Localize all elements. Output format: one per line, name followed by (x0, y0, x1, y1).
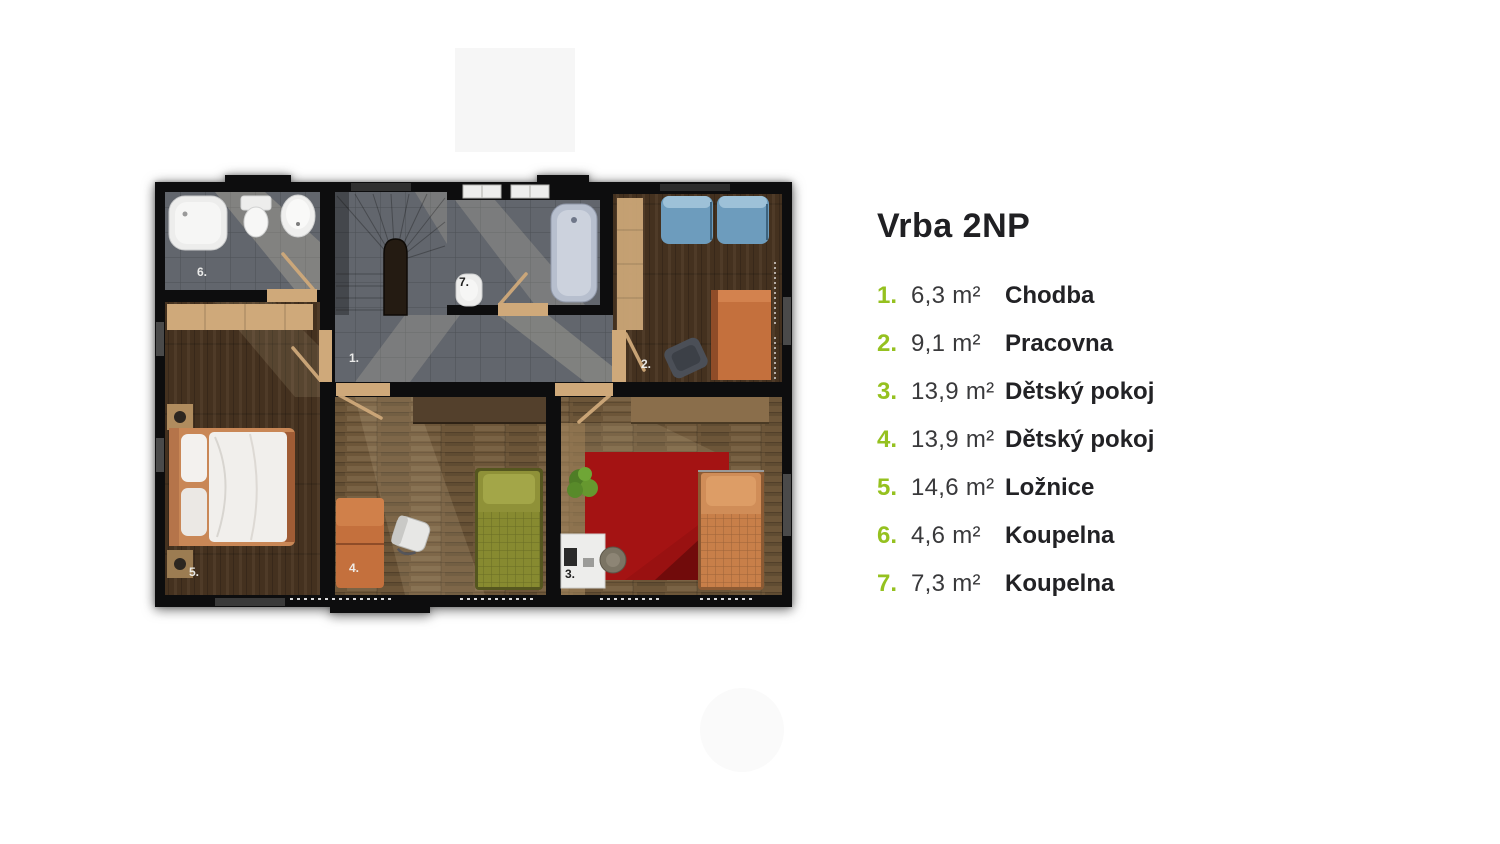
legend-area: 6,3 m² (911, 282, 1005, 310)
legend-number: 2. (877, 330, 911, 358)
legend-room-name: Koupelna (1005, 570, 1114, 598)
legend-row: 4. 13,9 m² Dětský pokoj (877, 426, 1297, 452)
page: 1. 2. 3. 4. 5. 6. 7. Vrba 2NP 1. 6,3 m² … (0, 0, 1500, 844)
legend: Vrba 2NP 1. 6,3 m² Chodba 2. 9,1 m² Prac… (877, 204, 1297, 618)
legend-area: 4,6 m² (911, 522, 1005, 550)
legend-room-name: Chodba (1005, 282, 1094, 310)
faint-render-artifact (700, 688, 784, 772)
room-label-bath-6: 6. (197, 265, 207, 279)
legend-number: 3. (877, 378, 911, 406)
legend-number: 7. (877, 570, 911, 598)
room-label-kids-3: 3. (565, 567, 575, 581)
legend-row: 2. 9,1 m² Pracovna (877, 330, 1297, 356)
orange-sofa (336, 498, 384, 588)
legend-row: 6. 4,6 m² Koupelna (877, 522, 1297, 548)
legend-area: 13,9 m² (911, 378, 1005, 406)
legend-area: 7,3 m² (911, 570, 1005, 598)
room-label-bedroom: 5. (189, 565, 199, 579)
legend-number: 4. (877, 426, 911, 454)
legend-number: 5. (877, 474, 911, 502)
legend-room-name: Pracovna (1005, 330, 1113, 358)
room-label-study: 2. (641, 357, 651, 371)
legend-row: 7. 7,3 m² Koupelna (877, 570, 1297, 596)
room-label-kids-4: 4. (349, 561, 359, 575)
room-label-bath-7: 7. (459, 275, 469, 289)
legend-room-name: Dětský pokoj (1005, 378, 1154, 406)
orange-bed (698, 470, 764, 590)
legend-row: 3. 13,9 m² Dětský pokoj (877, 378, 1297, 404)
legend-area: 9,1 m² (911, 330, 1005, 358)
green-bed (475, 468, 543, 590)
page-title: Vrba 2NP (877, 204, 1297, 248)
legend-area: 13,9 m² (911, 426, 1005, 454)
legend-number: 6. (877, 522, 911, 550)
legend-number: 1. (877, 282, 911, 310)
legend-room-name: Ložnice (1005, 474, 1094, 502)
legend-room-name: Koupelna (1005, 522, 1114, 550)
faint-render-artifact (455, 48, 575, 152)
legend-room-name: Dětský pokoj (1005, 426, 1154, 454)
legend-row: 5. 14,6 m² Ložnice (877, 474, 1297, 500)
legend-area: 14,6 m² (911, 474, 1005, 502)
desk (711, 290, 771, 380)
legend-row: 1. 6,3 m² Chodba (877, 282, 1297, 308)
double-bed (169, 428, 295, 546)
room-label-hallway: 1. (349, 351, 359, 365)
floor-plan: 1. 2. 3. 4. 5. 6. 7. (155, 174, 792, 616)
